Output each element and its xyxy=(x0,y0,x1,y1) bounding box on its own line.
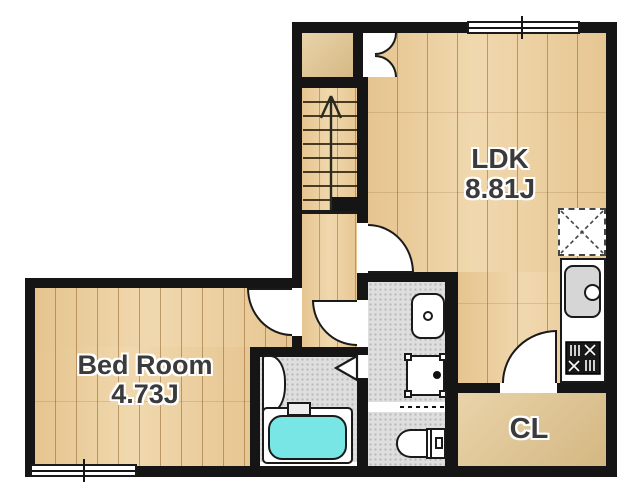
bedroom-doorway-gap xyxy=(292,288,302,336)
bifold-bath-door-icon xyxy=(333,353,359,383)
wall-stair-stub xyxy=(332,197,357,211)
wall-bedroom-left xyxy=(25,278,35,477)
faucet-icon xyxy=(584,284,601,301)
wall-bath-wash xyxy=(357,378,368,466)
wall-closet-top-right xyxy=(557,383,606,393)
wall-entry-side xyxy=(353,33,363,77)
hall-ldk-doorway-gap xyxy=(357,223,368,273)
floor-plan: LDK 8.81J Bed Room 4.73J CL xyxy=(0,0,640,497)
window-tick xyxy=(521,16,523,39)
entry-doorway-gap xyxy=(363,33,375,77)
ldk-name: LDK xyxy=(430,144,570,174)
window-mid-line xyxy=(469,27,578,29)
pan-corner xyxy=(404,353,412,361)
closet-doorway-gap xyxy=(500,383,557,393)
toilet-flush-icon xyxy=(435,437,443,449)
closet-label: CL xyxy=(479,414,579,445)
closet-name: CL xyxy=(479,414,579,445)
refrigerator-space xyxy=(558,208,606,256)
ldk-label: LDK 8.81J xyxy=(430,144,570,204)
sliding-window-top xyxy=(467,21,580,34)
bedroom-label: Bed Room 4.73J xyxy=(55,351,235,409)
wall-bath-left xyxy=(250,347,260,466)
wall-left-upper xyxy=(292,22,302,288)
toilet-tank-line xyxy=(430,430,432,457)
refrigerator-cross-icon xyxy=(560,210,604,254)
gas-stove xyxy=(565,341,601,375)
accordion-door xyxy=(400,406,445,408)
bedroom-name: Bed Room xyxy=(55,351,235,380)
wash-basin-drain-icon xyxy=(423,311,433,321)
wall-closet-top-left xyxy=(445,383,500,393)
washer-drain-icon xyxy=(433,371,441,379)
wall-hall-wash xyxy=(357,273,368,300)
wall-right xyxy=(606,22,617,477)
wall-washroom-right xyxy=(445,272,458,466)
wall-bedroom-top xyxy=(25,278,302,288)
pan-corner xyxy=(439,353,447,361)
pan-corner xyxy=(404,390,412,398)
bedroom-size: 4.73J xyxy=(55,380,235,409)
bathtub-faucet-deck xyxy=(287,402,311,416)
bathtub xyxy=(268,415,347,460)
stairs-up-arrow-icon xyxy=(310,88,352,214)
entry-landing-floor xyxy=(302,33,357,77)
pan-corner xyxy=(439,390,447,398)
ldk-size: 8.81J xyxy=(430,174,570,204)
wall-hall-ldk xyxy=(357,77,368,223)
hall-washroom-doorway-gap xyxy=(357,300,368,347)
toilet-bowl xyxy=(396,429,429,458)
window-tick xyxy=(83,459,85,482)
